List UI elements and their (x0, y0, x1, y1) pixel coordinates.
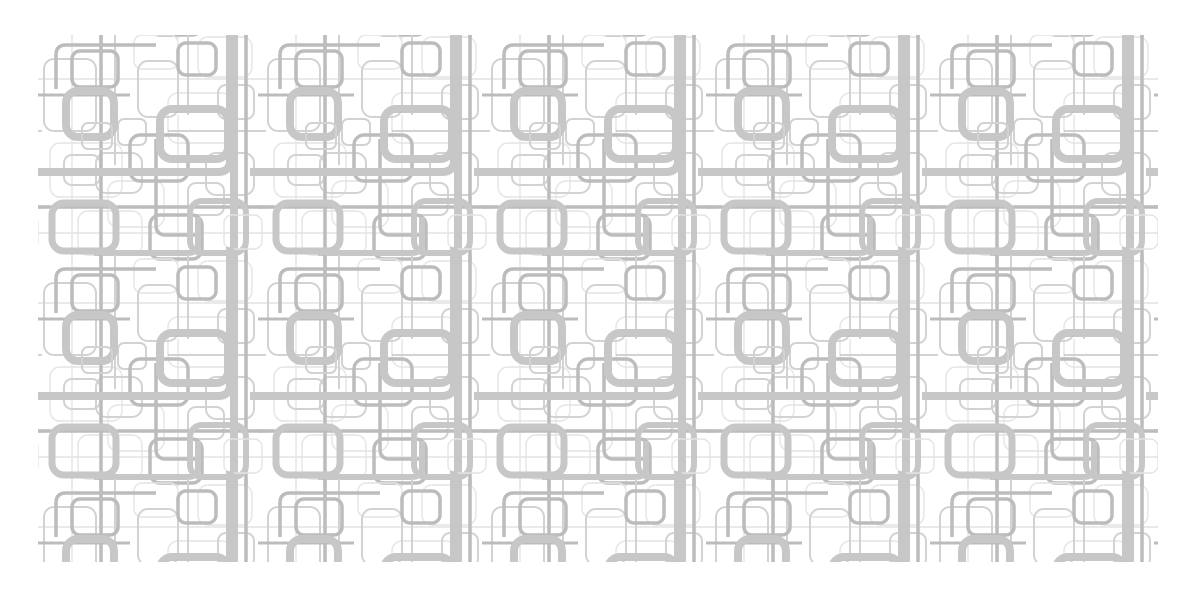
pattern-fill (38, 35, 1158, 562)
pattern-canvas (0, 0, 1200, 600)
pattern-artwork (38, 35, 1158, 562)
pattern-svg (38, 35, 1158, 562)
